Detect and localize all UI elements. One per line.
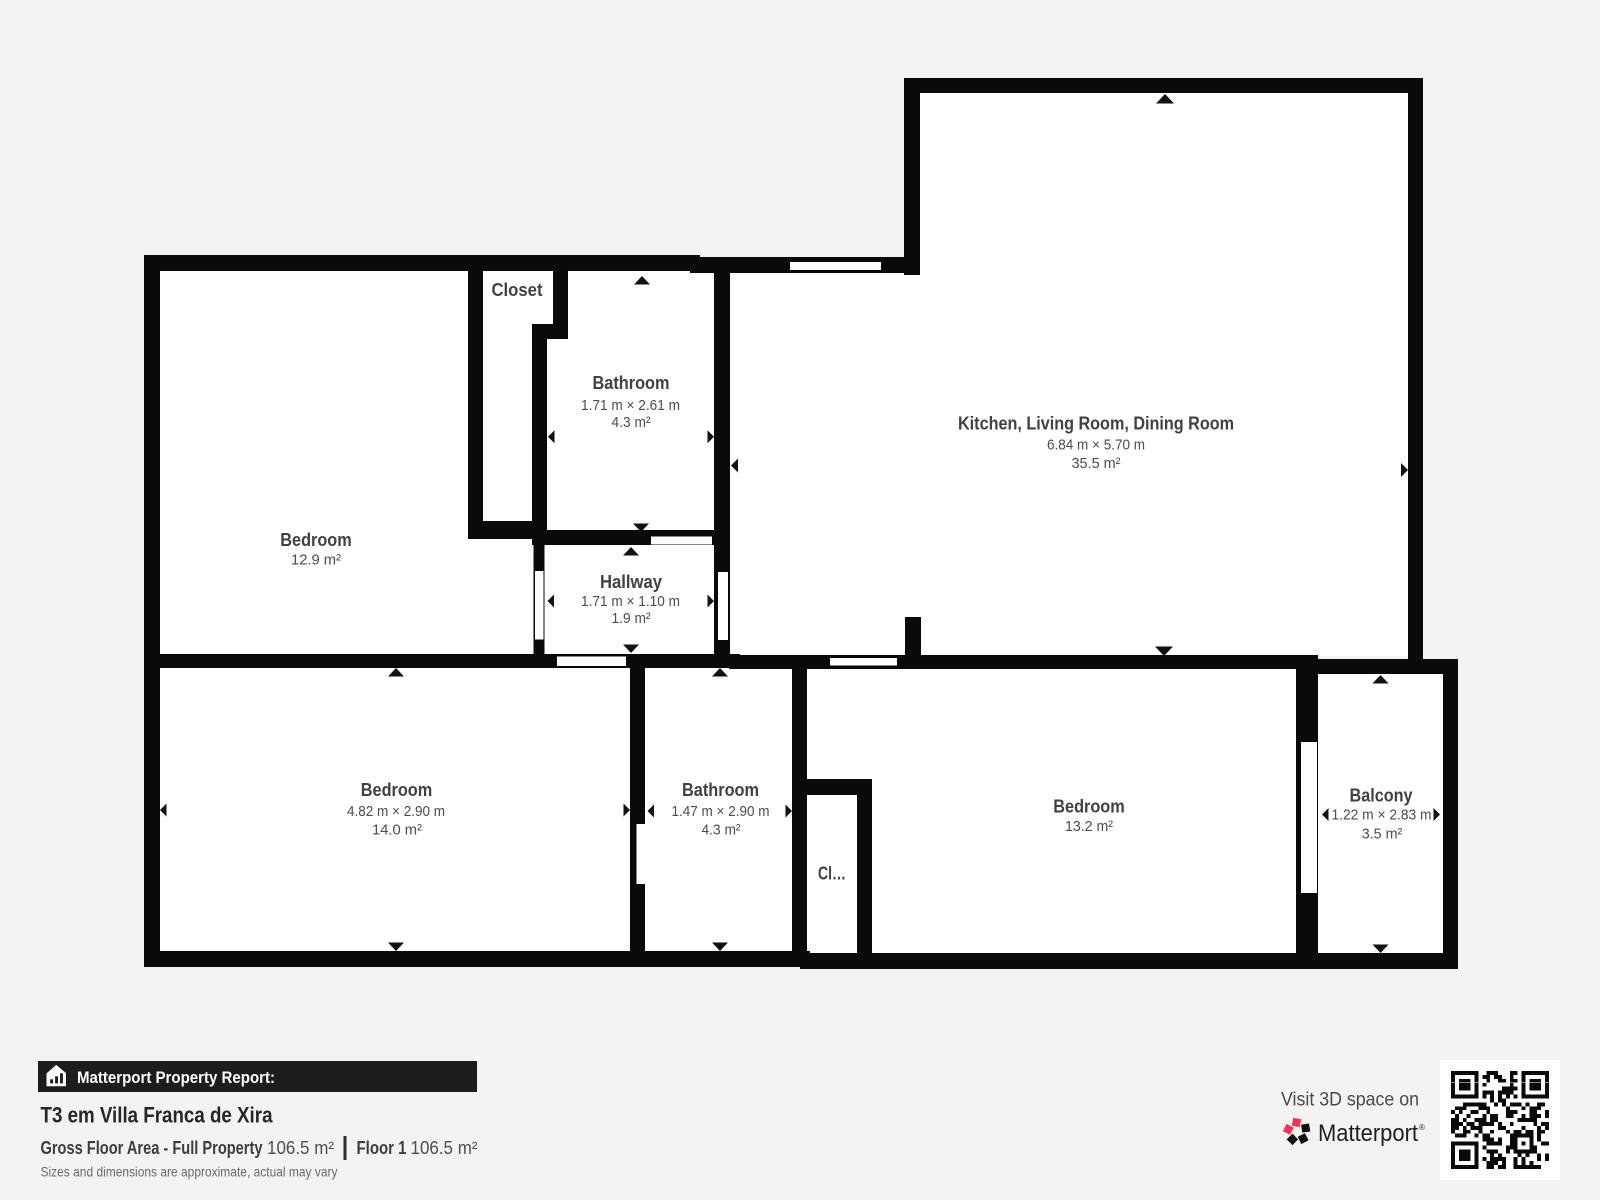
svg-text:106.5 m²: 106.5 m² [267, 1138, 334, 1158]
svg-text:3.5 m²: 3.5 m² [1362, 826, 1403, 843]
svg-text:Bedroom: Bedroom [1053, 797, 1125, 817]
svg-text:106.5 m²: 106.5 m² [411, 1138, 478, 1158]
svg-text:Closet: Closet [492, 280, 543, 300]
svg-text:Bathroom: Bathroom [593, 373, 670, 393]
svg-text:Floor 1: Floor 1 [357, 1137, 407, 1158]
svg-text:Gross Floor Area - Full Proper: Gross Floor Area - Full Property [41, 1137, 264, 1158]
svg-text:6.84 m × 5.70 m: 6.84 m × 5.70 m [1047, 437, 1145, 454]
svg-text:Visit 3D space on: Visit 3D space on [1281, 1089, 1419, 1111]
svg-text:4.82 m × 2.90 m: 4.82 m × 2.90 m [347, 803, 445, 820]
svg-text:Bedroom: Bedroom [280, 530, 352, 550]
svg-text:T3 em Villa Franca de Xira: T3 em Villa Franca de Xira [41, 1103, 274, 1128]
svg-text:1.71 m × 1.10 m: 1.71 m × 1.10 m [581, 593, 680, 610]
svg-text:Bedroom: Bedroom [361, 780, 433, 800]
svg-text:1.47 m × 2.90 m: 1.47 m × 2.90 m [672, 803, 770, 820]
svg-text:Hallway: Hallway [600, 572, 662, 592]
svg-text:14.0 m²: 14.0 m² [372, 822, 422, 839]
svg-text:13.2 m²: 13.2 m² [1065, 818, 1113, 835]
svg-text:12.9 m²: 12.9 m² [291, 552, 341, 569]
svg-text:1.71 m × 2.61 m: 1.71 m × 2.61 m [581, 397, 680, 414]
svg-text:Kitchen, Living Room, Dining R: Kitchen, Living Room, Dining Room [958, 414, 1234, 434]
svg-text:1.22 m × 2.83 m: 1.22 m × 2.83 m [1332, 807, 1432, 824]
svg-text:Balcony: Balcony [1350, 786, 1413, 806]
svg-text:Cl…: Cl… [818, 864, 846, 884]
svg-text:Matterport: Matterport [1318, 1120, 1418, 1147]
svg-text:Matterport Property Report:: Matterport Property Report: [77, 1068, 275, 1087]
svg-text:4.3 m²: 4.3 m² [702, 822, 741, 839]
svg-text:Bathroom: Bathroom [682, 780, 759, 800]
svg-text:4.3 m²: 4.3 m² [612, 414, 651, 431]
svg-text:35.5 m²: 35.5 m² [1072, 455, 1121, 472]
svg-text:Sizes and dimensions are appro: Sizes and dimensions are approximate, ac… [41, 1165, 338, 1180]
svg-text:®: ® [1419, 1123, 1425, 1132]
svg-text:1.9 m²: 1.9 m² [612, 610, 651, 627]
